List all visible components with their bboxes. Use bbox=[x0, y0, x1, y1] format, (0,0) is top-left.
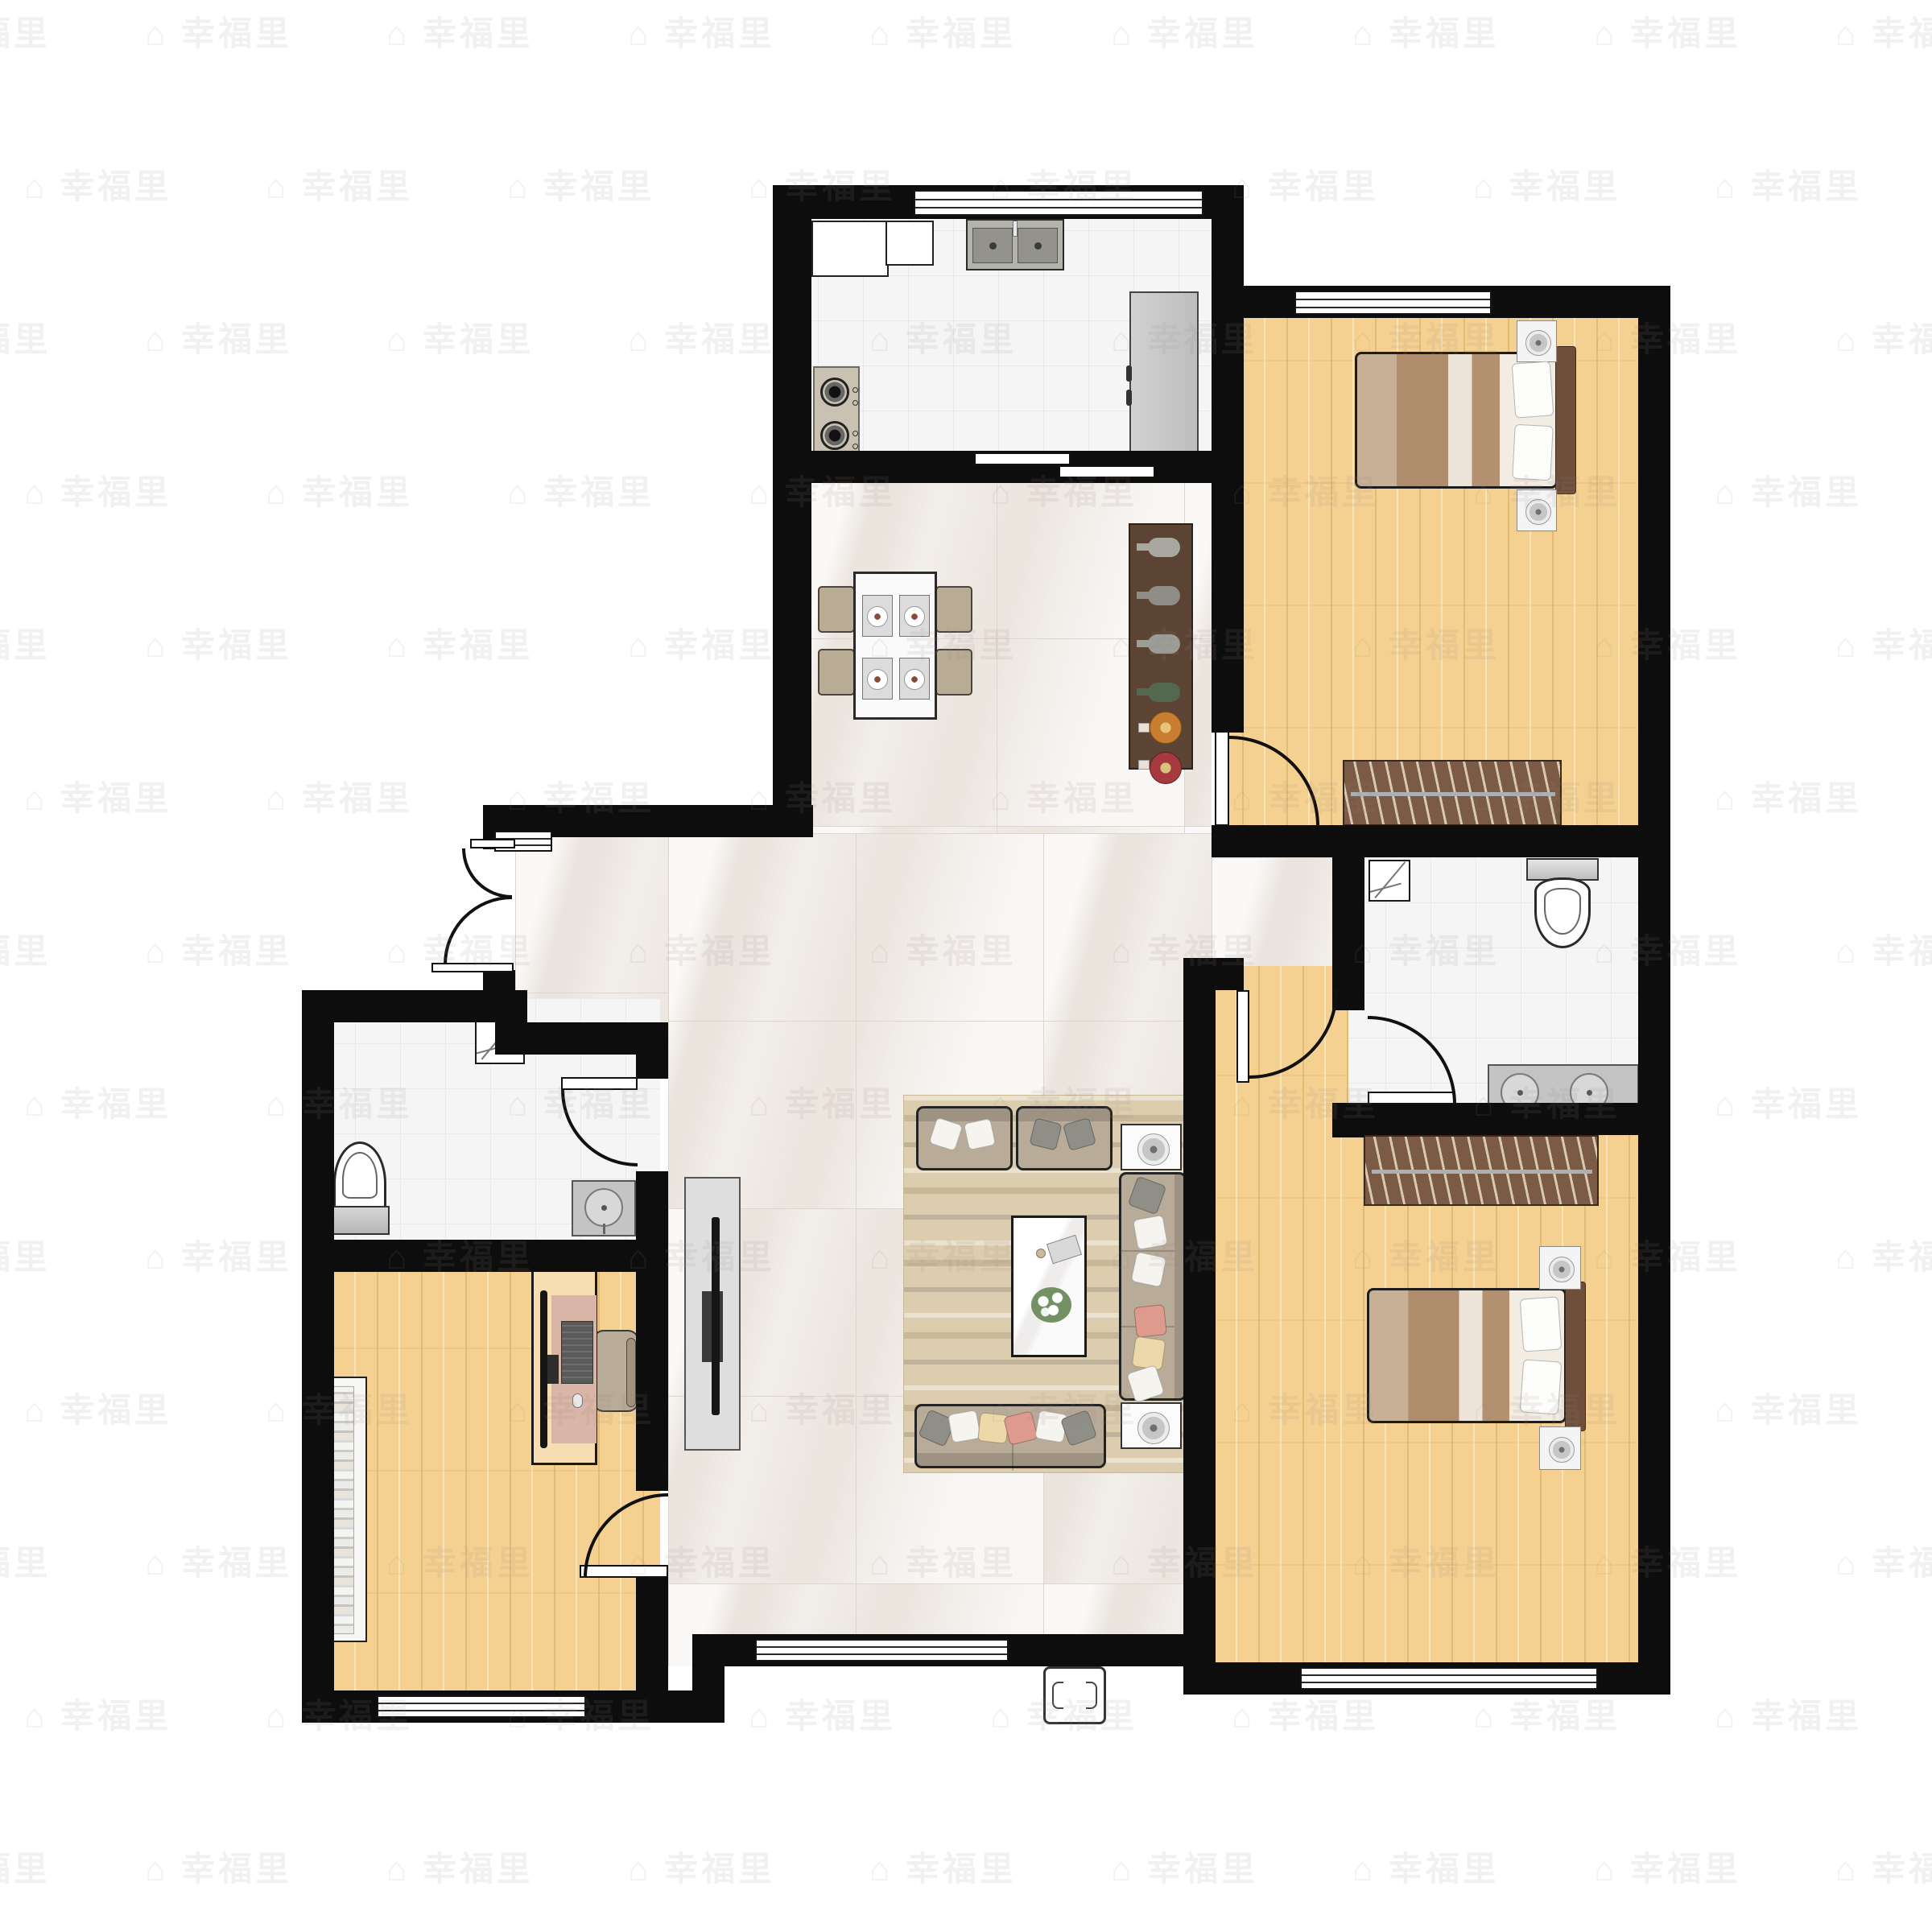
ac-unit bbox=[1043, 1666, 1106, 1724]
entry-door-leaf-large-swing bbox=[444, 896, 512, 964]
armchair-left-pillow-b bbox=[964, 1118, 996, 1150]
stove-burner-top bbox=[820, 378, 849, 407]
monitor-stand bbox=[547, 1355, 559, 1384]
watermark: ⌂ 幸福里 bbox=[145, 1230, 292, 1279]
bathroom-right-toilet-bowl bbox=[1534, 877, 1591, 948]
bedroom-bottom-right-pillow-b bbox=[1520, 1359, 1562, 1414]
wall-hallstrip-bottom bbox=[495, 1022, 668, 1055]
sink-drain-right bbox=[1034, 242, 1042, 250]
decanter-red bbox=[1150, 752, 1182, 784]
plate-3 bbox=[867, 669, 888, 690]
watermark: ⌂ 幸福里 bbox=[1715, 1077, 1862, 1126]
fridge-handle-top bbox=[1126, 365, 1132, 382]
dining-chair-top-left bbox=[818, 586, 855, 633]
sofa-right-pillow-5 bbox=[1132, 1336, 1166, 1371]
watermark: ⌂ 幸福里 bbox=[1473, 159, 1620, 208]
wall-kitchen-bed2 bbox=[1212, 185, 1244, 733]
wine-bottle-3 bbox=[1148, 634, 1180, 654]
bedroom-top-right-window bbox=[1294, 291, 1492, 315]
watermark: ⌂ 幸福里 bbox=[1715, 1383, 1862, 1432]
watermark: ⌂ 幸福里 bbox=[145, 312, 292, 361]
computer-monitor-icon bbox=[540, 1290, 547, 1448]
bedroom-top-right-headboard bbox=[1555, 346, 1576, 494]
watermark: ⌂ 幸福里 bbox=[24, 1077, 171, 1126]
sofa-bottom-pillow-2 bbox=[947, 1410, 981, 1443]
watermark: ⌂ 幸福里 bbox=[1715, 771, 1862, 820]
kitchen-sliding-door-panel-b bbox=[1059, 465, 1155, 478]
wall-bath1-top bbox=[302, 990, 527, 1022]
kitchen-sliding-door-panel-a bbox=[974, 452, 1071, 465]
watermark: ⌂ 幸福里 bbox=[0, 6, 51, 56]
coffee-table-cup bbox=[1036, 1249, 1046, 1258]
watermark: ⌂ 幸福里 bbox=[0, 1536, 51, 1585]
study-window bbox=[377, 1695, 586, 1718]
wall-right-exterior bbox=[1638, 286, 1670, 1695]
watermark: ⌂ 幸福里 bbox=[1594, 6, 1741, 56]
decanter-red-stopper bbox=[1138, 760, 1150, 770]
watermark: ⌂ 幸福里 bbox=[1835, 618, 1932, 667]
watermark: ⌂ 幸福里 bbox=[628, 312, 775, 361]
dining-chair-top-right bbox=[935, 586, 972, 633]
sofa-right-pillow-3 bbox=[1130, 1251, 1166, 1287]
watermark: ⌂ 幸福里 bbox=[266, 771, 413, 820]
kitchen-corner-counter-b bbox=[885, 221, 934, 266]
bedroom-bottom-right-door-leaf bbox=[1236, 990, 1249, 1083]
decanter-orange-stopper bbox=[1138, 723, 1150, 733]
lamp-icon bbox=[1525, 330, 1551, 356]
watermark: ⌂ 幸福里 bbox=[145, 618, 292, 667]
wine-bottle-2-neck bbox=[1137, 592, 1150, 599]
sofa-bottom-pillow-3 bbox=[977, 1412, 1009, 1444]
stove-knob-b bbox=[852, 400, 858, 406]
office-chair bbox=[592, 1330, 639, 1412]
entry-door-frame-top bbox=[470, 839, 515, 848]
watermark: ⌂ 幸福里 bbox=[145, 924, 292, 973]
bedroom-top-right-nightstand-bottom bbox=[1517, 489, 1557, 531]
watermark: ⌂ 幸福里 bbox=[628, 618, 775, 667]
watermark: ⌂ 幸福里 bbox=[0, 924, 51, 973]
lamp-icon bbox=[1137, 1412, 1170, 1444]
wall-bath1-bottom bbox=[302, 1240, 668, 1272]
kitchen-sink bbox=[966, 219, 1064, 270]
watermark: ⌂ 幸福里 bbox=[1715, 159, 1862, 208]
bedroom-bottom-right-nightstand-top bbox=[1539, 1246, 1581, 1290]
wine-bottle-3-neck bbox=[1137, 640, 1150, 647]
entry-door-leaf-small-swing bbox=[462, 848, 512, 898]
stove-knob-a bbox=[852, 387, 858, 393]
lamp-icon bbox=[1549, 1257, 1575, 1282]
coffee-table bbox=[1011, 1216, 1087, 1357]
wall-left-exterior bbox=[302, 990, 334, 1723]
bathroom-left-toilet-tank bbox=[330, 1206, 390, 1235]
watermark: ⌂ 幸福里 bbox=[1352, 6, 1500, 56]
watermark: ⌂ 幸福里 bbox=[1835, 1536, 1932, 1585]
watermark: ⌂ 幸福里 bbox=[1835, 1842, 1932, 1891]
plate-4 bbox=[904, 669, 925, 690]
living-room-window bbox=[755, 1639, 1009, 1662]
watermark: ⌂ 幸福里 bbox=[1715, 465, 1862, 514]
wall-bath2-left-upper bbox=[1332, 857, 1364, 1010]
sofa-right-seam-1 bbox=[1121, 1250, 1174, 1252]
wine-cabinet bbox=[1129, 523, 1193, 770]
watermark: ⌂ 幸福里 bbox=[386, 1842, 534, 1891]
watermark: ⌂ 幸福里 bbox=[386, 618, 534, 667]
watermark: ⌂ 幸福里 bbox=[1111, 6, 1258, 56]
stove-knob-d bbox=[852, 444, 858, 449]
coffee-table-flowers bbox=[1031, 1287, 1071, 1323]
wall-kitchen-left bbox=[773, 185, 811, 837]
watermark: ⌂ 幸福里 bbox=[1232, 1689, 1379, 1738]
plate-2 bbox=[904, 606, 925, 627]
bedroom-bottom-right-pillow-a bbox=[1520, 1296, 1562, 1352]
wine-bottle-4-neck bbox=[1137, 688, 1150, 696]
stove-burner-bottom bbox=[820, 421, 849, 450]
side-table-top bbox=[1121, 1124, 1182, 1170]
bedroom-bottom-right-wardrobe bbox=[1364, 1135, 1599, 1206]
wardrobe-rail bbox=[1372, 1170, 1592, 1174]
vanity-drain-left bbox=[1517, 1090, 1523, 1096]
sink-drain-left bbox=[989, 242, 997, 250]
bathroom-right-corner-shower bbox=[1368, 860, 1410, 902]
watermark: ⌂ 幸福里 bbox=[507, 465, 654, 514]
wine-bottle-2 bbox=[1148, 586, 1180, 605]
watermark: ⌂ 幸福里 bbox=[1473, 1689, 1620, 1738]
wine-bottle-1 bbox=[1148, 538, 1180, 557]
watermark: ⌂ 幸福里 bbox=[24, 465, 171, 514]
dining-table bbox=[853, 572, 937, 720]
stove-knob-c bbox=[852, 431, 858, 436]
watermark: ⌂ 幸福里 bbox=[0, 1230, 51, 1279]
dining-chair-bottom-left bbox=[818, 649, 855, 696]
bedroom-top-right-door-leaf bbox=[1215, 731, 1229, 826]
watermark: ⌂ 幸福里 bbox=[1835, 312, 1932, 361]
watermark: ⌂ 幸福里 bbox=[1835, 1230, 1932, 1279]
decanter-orange bbox=[1150, 712, 1182, 744]
watermark: ⌂ 幸福里 bbox=[24, 771, 171, 820]
watermark: ⌂ 幸福里 bbox=[1835, 924, 1932, 973]
sofa-right-pillow-2 bbox=[1133, 1215, 1168, 1250]
watermark: ⌂ 幸福里 bbox=[145, 6, 292, 56]
bedroom-bottom-right-headboard bbox=[1565, 1282, 1586, 1431]
dining-chair-bottom-right bbox=[935, 649, 972, 696]
study-desk bbox=[531, 1269, 597, 1465]
plate-1 bbox=[867, 606, 888, 627]
lamp-icon bbox=[1137, 1133, 1170, 1166]
watermark: ⌂ 幸福里 bbox=[0, 1842, 51, 1891]
wall-left-section-east-a bbox=[636, 1055, 668, 1079]
lamp-icon bbox=[1525, 499, 1551, 525]
watermark: ⌂ 幸福里 bbox=[145, 1536, 292, 1585]
bathroom-left-door-leaf bbox=[561, 1077, 638, 1090]
watermark: ⌂ 幸福里 bbox=[1715, 1689, 1862, 1738]
watermark: ⌂ 幸福里 bbox=[749, 1689, 896, 1738]
bedroom-top-right-pillow-a bbox=[1512, 361, 1554, 418]
wall-bed2-bottom bbox=[1212, 825, 1670, 857]
office-chair-back bbox=[626, 1338, 636, 1407]
watermark: ⌂ 幸福里 bbox=[266, 465, 413, 514]
watermark: ⌂ 幸福里 bbox=[386, 312, 534, 361]
watermark: ⌂ 幸福里 bbox=[0, 312, 51, 361]
watermark: ⌂ 幸福里 bbox=[1111, 1842, 1258, 1891]
kitchen-corner-counter-a bbox=[811, 221, 889, 277]
bedroom-bottom-right-nightstand-bottom bbox=[1539, 1426, 1581, 1470]
watermark: ⌂ 幸福里 bbox=[628, 1842, 775, 1891]
watermark: ⌂ 幸福里 bbox=[869, 6, 1017, 56]
bedroom-top-right-wardrobe bbox=[1343, 760, 1562, 826]
sink-faucet bbox=[1013, 221, 1018, 237]
ac-bracket-right bbox=[1086, 1682, 1097, 1709]
keyboard-icon bbox=[561, 1321, 593, 1384]
watermark: ⌂ 幸福里 bbox=[869, 1842, 1017, 1891]
watermark: ⌂ 幸福里 bbox=[1594, 1842, 1741, 1891]
sink-tap bbox=[603, 1224, 605, 1234]
toilet-bowl-inner bbox=[1544, 888, 1581, 935]
side-table-bottom bbox=[1121, 1402, 1182, 1449]
watermark: ⌂ 幸福里 bbox=[1232, 159, 1379, 208]
sofa-right-pillow-4 bbox=[1133, 1304, 1167, 1338]
toilet-bowl-inner bbox=[342, 1152, 378, 1199]
wine-bottle-1-neck bbox=[1137, 543, 1150, 551]
sink-drain bbox=[601, 1205, 607, 1211]
kitchen-window bbox=[914, 190, 1203, 216]
wall-bed3-arm-top-west bbox=[1183, 958, 1244, 990]
watermark: ⌂ 幸福里 bbox=[628, 6, 775, 56]
wall-left-section-east-b bbox=[636, 1171, 668, 1491]
bathroom-left-sink-counter bbox=[572, 1180, 636, 1236]
fridge-handle-bottom bbox=[1126, 390, 1132, 406]
vanity-drain-right bbox=[1587, 1090, 1592, 1096]
wardrobe-rail bbox=[1351, 792, 1555, 796]
watermark: ⌂ 幸福里 bbox=[0, 618, 51, 667]
kitchen-fridge bbox=[1129, 291, 1199, 464]
bedroom-top-right-nightstand-top bbox=[1517, 320, 1557, 362]
watermark: ⌂ 幸福里 bbox=[386, 6, 534, 56]
wall-bath2-bottom bbox=[1332, 1103, 1670, 1135]
wine-bottle-4 bbox=[1148, 683, 1180, 702]
watermark: ⌂ 幸福里 bbox=[24, 159, 171, 208]
floor-plan: ⌂ 幸福里⌂ 幸福里⌂ 幸福里⌂ 幸福里⌂ 幸福里⌂ 幸福里⌂ 幸福里⌂ 幸福里… bbox=[0, 0, 1932, 1932]
ac-bracket-left bbox=[1052, 1682, 1063, 1709]
watermark: ⌂ 幸福里 bbox=[266, 159, 413, 208]
kitchen-stove bbox=[813, 366, 860, 463]
bedroom-top-right-pillow-b bbox=[1512, 424, 1553, 481]
coffee-table-magazine bbox=[1046, 1235, 1082, 1264]
watermark: ⌂ 幸福里 bbox=[1835, 6, 1932, 56]
wall-bed3-left bbox=[1183, 958, 1216, 1695]
tv-screen bbox=[712, 1217, 720, 1415]
watermark: ⌂ 幸福里 bbox=[1352, 1842, 1500, 1891]
bedroom-bottom-right-window bbox=[1300, 1667, 1598, 1690]
watermark: ⌂ 幸福里 bbox=[24, 1383, 171, 1432]
watermark: ⌂ 幸福里 bbox=[507, 159, 654, 208]
lamp-icon bbox=[1549, 1437, 1575, 1463]
watermark: ⌂ 幸福里 bbox=[24, 1689, 171, 1738]
mouse-icon bbox=[572, 1393, 583, 1408]
watermark: ⌂ 幸福里 bbox=[145, 1842, 292, 1891]
